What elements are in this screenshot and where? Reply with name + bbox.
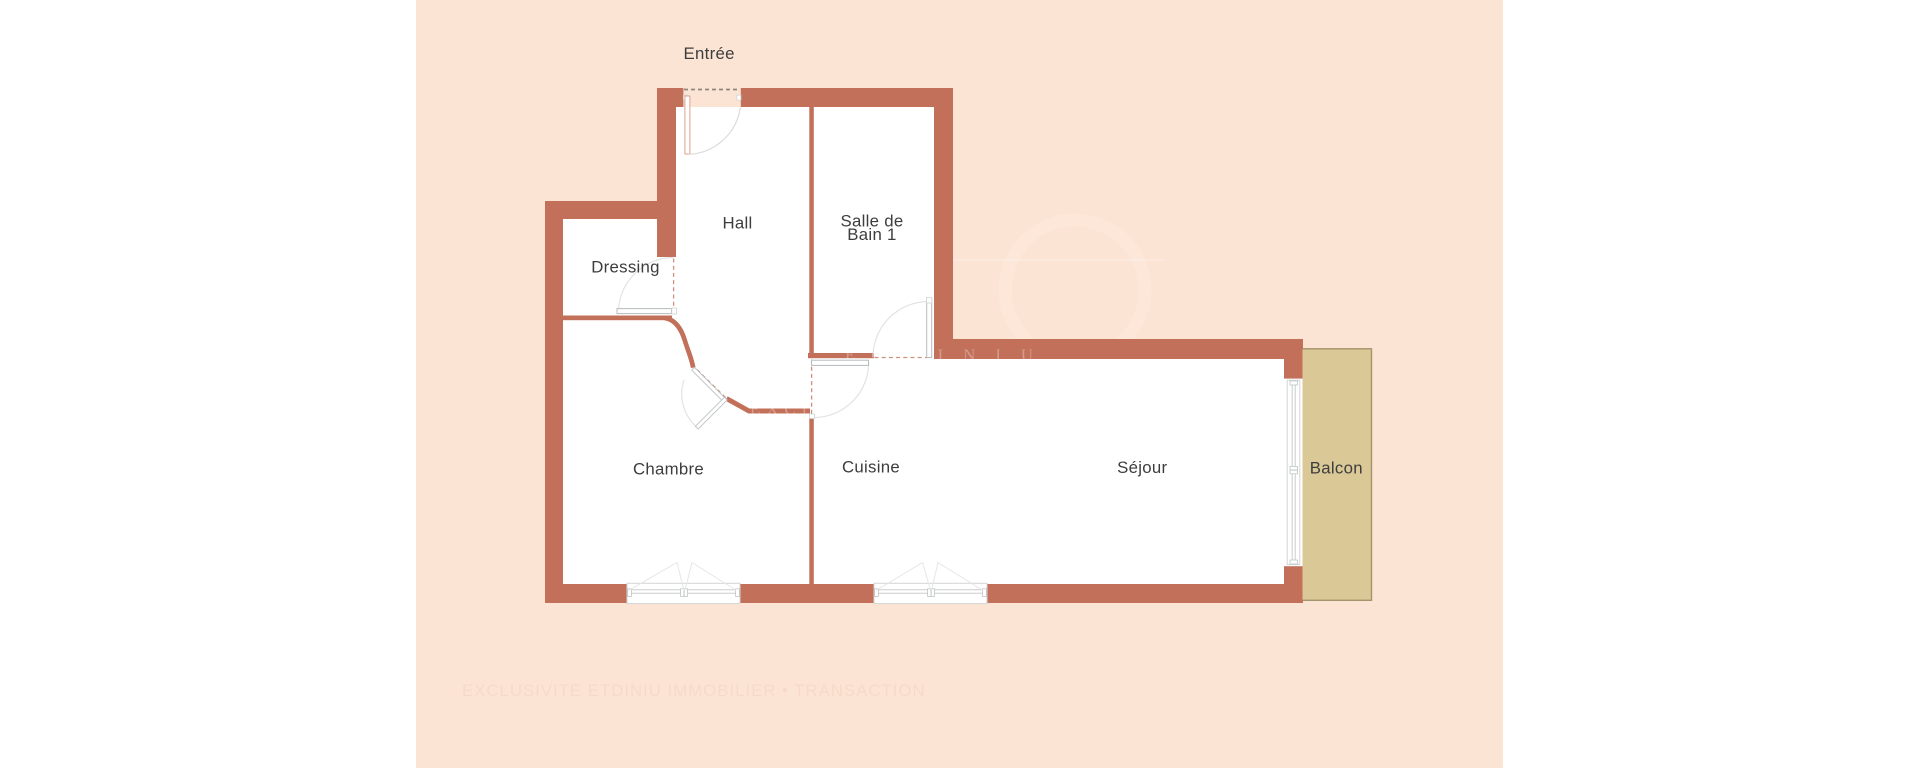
svg-text:Balcon: Balcon — [1310, 458, 1363, 477]
svg-text:ETDINIU: ETDINIU — [845, 346, 1053, 365]
svg-text:Dressing: Dressing — [591, 258, 660, 277]
svg-text:Bain 1: Bain 1 — [847, 225, 896, 244]
svg-text:Hall: Hall — [722, 213, 752, 232]
svg-text:Chambre: Chambre — [633, 460, 704, 479]
svg-text:EXCLUSIVITE: EXCLUSIVITE — [750, 400, 925, 419]
svg-text:Séjour: Séjour — [1117, 458, 1167, 477]
svg-text:Entrée: Entrée — [684, 44, 735, 63]
svg-text:EXCLUSIVITE ETDINIU IMMOBILIE: EXCLUSIVITE ETDINIU IMMOBILIER • TRANSAC… — [462, 681, 926, 700]
svg-text:Cuisine: Cuisine — [842, 458, 900, 477]
